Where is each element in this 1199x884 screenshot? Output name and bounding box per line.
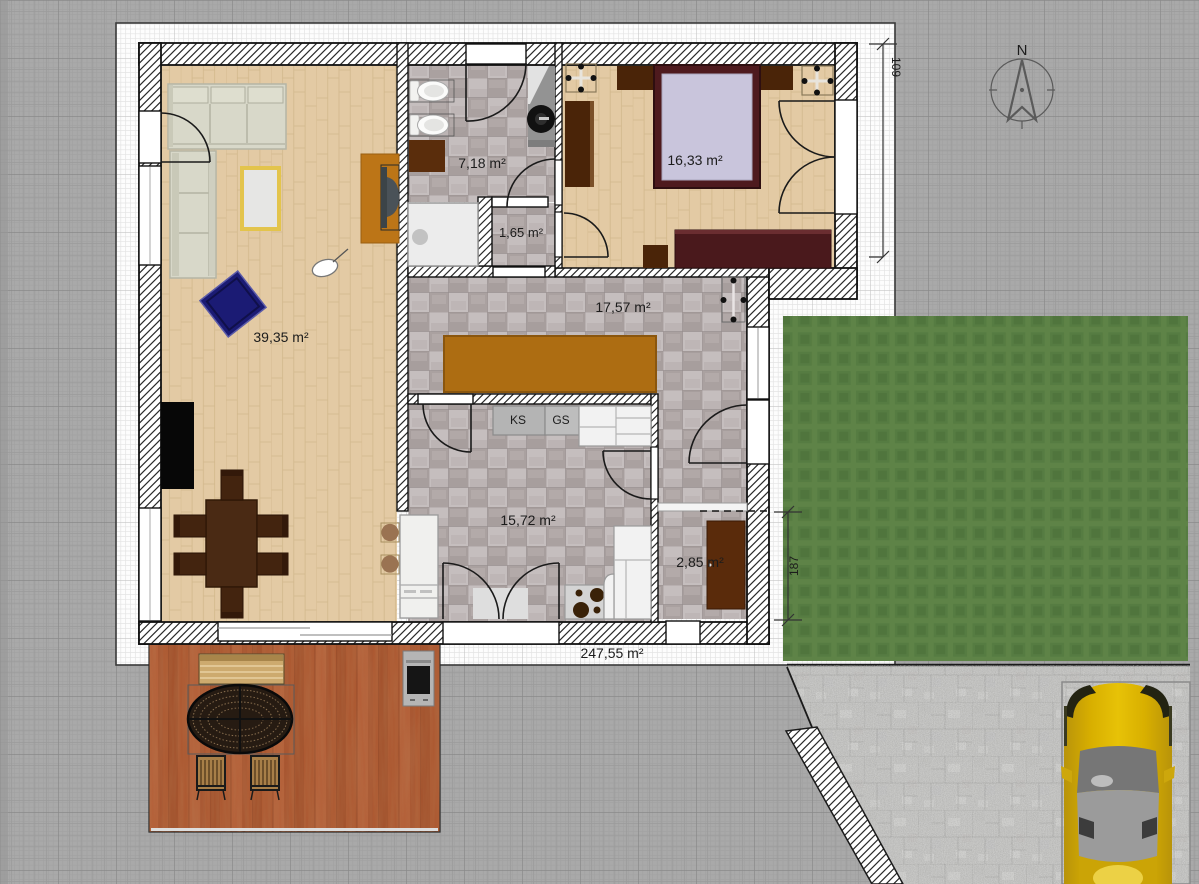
svg-text:1,65 m²: 1,65 m² (499, 225, 544, 240)
svg-text:KS: KS (510, 413, 526, 427)
svg-text:N: N (1017, 42, 1028, 59)
svg-text:247,55 m²: 247,55 m² (580, 645, 643, 661)
svg-text:109: 109 (889, 57, 903, 77)
svg-text:39,35 m²: 39,35 m² (253, 329, 309, 345)
svg-text:15,72 m²: 15,72 m² (500, 512, 556, 528)
svg-text:7,18 m²: 7,18 m² (458, 155, 506, 171)
svg-text:187: 187 (787, 556, 801, 576)
svg-text:GS: GS (552, 413, 569, 427)
svg-text:2,85 m²: 2,85 m² (676, 554, 724, 570)
svg-text:16,33 m²: 16,33 m² (667, 152, 723, 168)
svg-text:17,57 m²: 17,57 m² (595, 299, 651, 315)
